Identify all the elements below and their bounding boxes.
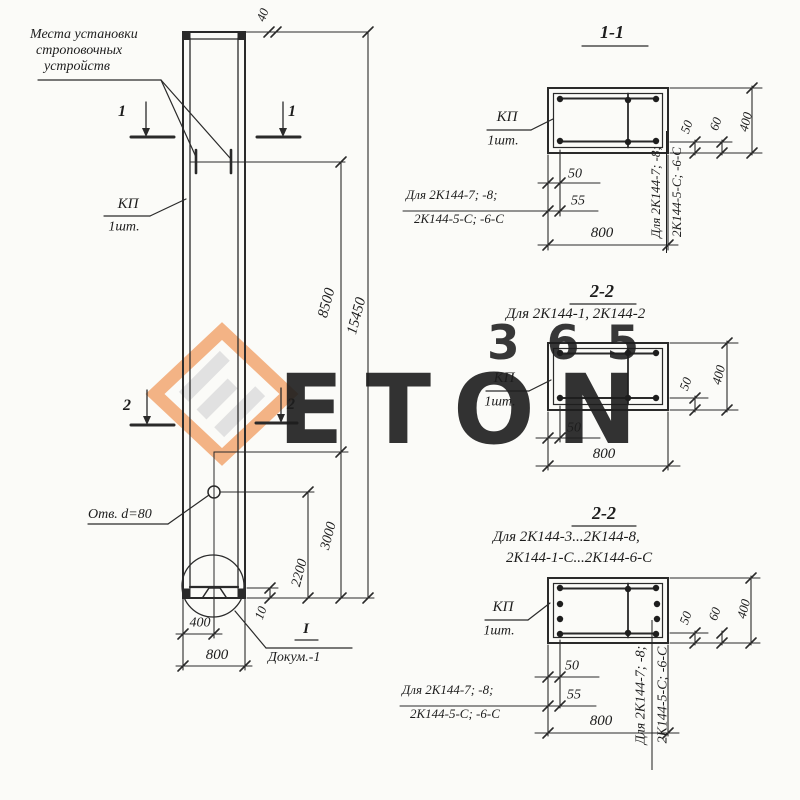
cut-mark-2-left: 2	[123, 397, 131, 415]
dim-800: 800	[206, 647, 229, 664]
s3-alt-note-v1: Для 2К144-7; -8;	[631, 620, 653, 770]
detail-doc-ref: Докум.-1	[268, 650, 320, 665]
s3-alt-note-v2: 2К144-5-С; -6-С	[653, 620, 674, 770]
s3-alt-note-line1: Для 2К144-7; -8;	[402, 683, 493, 697]
section-2-2-bottom-subtitle2: 2К144-1-С...2К144-6-С	[506, 550, 652, 567]
watermark-logo-icon	[155, 331, 289, 457]
section-2-2-mid-mark: КП	[494, 370, 515, 387]
section-2-2-bottom-mark: КП	[493, 599, 514, 616]
strop-note-line1: Места установки	[30, 27, 138, 42]
cut-mark-1-left: 1	[118, 103, 126, 121]
s2-dim-50-bottom: 50	[567, 420, 581, 435]
column-elevation	[182, 32, 345, 617]
s3-alt-note-vertical: Для 2К144-7; -8; 2К144-5-С; -6-С	[631, 620, 674, 770]
strop-note-line2: строповочных	[36, 43, 122, 58]
cut-mark-2-right: 2	[287, 396, 295, 414]
watermark-number: 365	[487, 318, 666, 370]
section-1-1-qty: 1шт.	[487, 133, 518, 148]
s1-alt-note-line1: Для 2К144-7; -8;	[406, 188, 497, 202]
strop-note-line3: устройств	[44, 59, 110, 74]
cut-mark-1-right: 1	[288, 103, 296, 121]
column-qty-label: 1шт.	[108, 219, 139, 234]
section-2-2-bottom-title: 2-2	[592, 504, 616, 524]
column-mark-label: КП	[118, 196, 139, 213]
section-1-1-title: 1-1	[600, 23, 624, 43]
s1-alt-note-line2: 2К144-5-С; -6-С	[414, 212, 504, 226]
detail-mark: I	[303, 621, 309, 638]
s1-dim-800: 800	[591, 225, 614, 242]
s1-dim-55: 55	[571, 193, 585, 208]
s3-dim-55: 55	[567, 687, 581, 702]
s1-dim-50-bottom: 50	[568, 166, 582, 181]
s2-dim-800: 800	[593, 446, 616, 463]
section-2-2-mid-qty: 1шт.	[484, 394, 515, 409]
s1-alt-note-v1: Для 2К144-7; -8;	[646, 131, 667, 253]
s3-dim-800: 800	[590, 713, 613, 730]
blueprint-page: ETON 365	[0, 0, 800, 800]
section-2-2-mid-title: 2-2	[590, 282, 614, 302]
hole-label: Отв. d=80	[88, 507, 152, 522]
section-1-1-mark: КП	[497, 109, 518, 126]
s3-dim-50-bottom: 50	[565, 658, 579, 673]
section-2-2-bottom-qty: 1шт.	[483, 623, 514, 638]
s3-alt-note-line2: 2К144-5-С; -6-С	[410, 707, 500, 721]
section-2-2-mid-subtitle: Для 2К144-1, 2К144-2	[506, 306, 645, 323]
dim-400: 400	[190, 615, 211, 630]
s1-alt-note-v2: 2К144-5-С; -6-С	[667, 131, 687, 253]
s1-alt-note-vertical: Для 2К144-7; -8; 2К144-5-С; -6-С	[646, 131, 686, 253]
section-2-2-bottom-subtitle1: Для 2К144-3...2К144-8,	[493, 529, 640, 546]
